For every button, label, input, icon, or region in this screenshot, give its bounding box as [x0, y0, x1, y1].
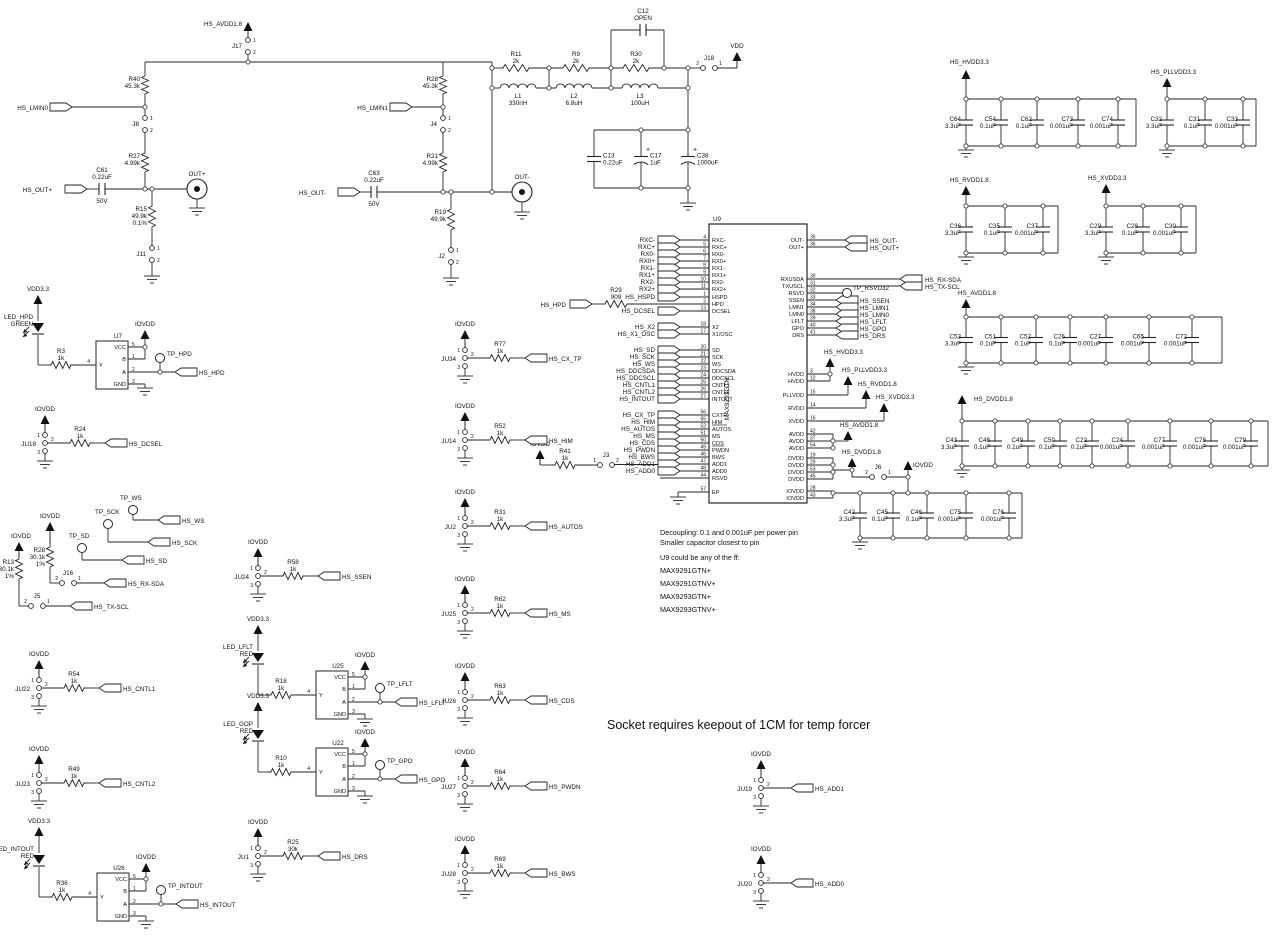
- pin-num-54: 54: [810, 443, 816, 449]
- pin-num: 1: [457, 776, 460, 782]
- resistor-body: [448, 206, 455, 233]
- ref-C37: C37: [1026, 223, 1038, 230]
- pin-num: 5: [132, 342, 135, 348]
- val-C45: 0.1uF: [872, 516, 888, 523]
- pin-num-28: 28: [810, 486, 816, 492]
- power-arrow-IOVDD: [461, 845, 470, 854]
- power-arrow-head: [254, 548, 263, 557]
- tp-label-TP_SCK: TP_SCK: [95, 509, 120, 516]
- net-flag-HS_CNTL2: [99, 779, 121, 787]
- pin-name-RXC-: RXC-: [712, 238, 726, 244]
- net-label-HS_HPD: HS_HPD: [540, 302, 566, 309]
- ref-C50: C50: [1043, 437, 1055, 444]
- power-net-IOVDD: IOVDD: [455, 403, 475, 410]
- pin-num: 2: [352, 774, 355, 780]
- val-R36: 1k: [59, 887, 67, 894]
- test-point-TP_WS: [129, 506, 138, 515]
- pin-name-RXUSDA: RXUSDA: [781, 277, 805, 283]
- resistor-body: [487, 610, 513, 617]
- val-R11: 2k: [513, 58, 521, 65]
- pin-name-DVDD: DVDD: [788, 470, 804, 476]
- val2-R13: 1%: [5, 573, 15, 580]
- led-triangle: [252, 653, 264, 662]
- pin-name-BWS: BWS: [712, 455, 725, 461]
- ref-C29: C29: [1089, 223, 1101, 230]
- power-net-HS_DVDD1.8: HS_DVDD1.8: [974, 396, 1013, 403]
- ref-C31: C31: [1188, 116, 1200, 123]
- val-C51: 0.1uF: [980, 341, 996, 348]
- pin-name-X2: X2: [712, 325, 719, 331]
- pin-name-RX0-: RX0-: [712, 252, 725, 258]
- net-flag-HS_CDS: [525, 696, 547, 704]
- power-net-IOVDD: IOVDD: [248, 539, 268, 546]
- power-net-IOVDD: IOVDD: [29, 746, 49, 753]
- pin-num: 3: [457, 447, 460, 453]
- junction-dot: [686, 66, 690, 70]
- pin-num: 3: [457, 707, 460, 713]
- net-label-HS_LMIN1: HS_LMIN1: [357, 105, 388, 112]
- power-arrow-IOVDD: [35, 660, 44, 669]
- junction-dot: [1241, 97, 1245, 101]
- ref-JU18: JU18: [21, 441, 36, 448]
- inductor-L2: [556, 84, 592, 88]
- pin-num-14: 14: [810, 403, 816, 409]
- junction-dot: [1104, 315, 1108, 319]
- net-label-HS_LFLT: HS_LFLT: [860, 319, 887, 326]
- pin-num: 4: [88, 891, 91, 897]
- net-flag-HS_LFLT: [395, 698, 417, 706]
- power-arrow-head: [844, 431, 853, 440]
- ref-R21: R21: [426, 153, 438, 160]
- ref-R27: R27: [128, 153, 140, 160]
- net-label-HS_OUT-: HS_OUT-: [870, 238, 897, 245]
- jumper-pin: [463, 603, 468, 608]
- ref-C13: C13: [603, 153, 615, 160]
- jumper-pin: [463, 879, 468, 884]
- ref-L2: L2: [570, 93, 578, 100]
- net-label-HS_ADD1: HS_ADD1: [626, 461, 656, 468]
- junction-dot: [143, 187, 147, 191]
- jumper-pin: [463, 348, 468, 353]
- junction-dot: [547, 86, 551, 90]
- ref-R28: R28: [33, 547, 45, 554]
- power-arrow-head: [46, 522, 55, 531]
- pin-num: 3: [753, 795, 756, 801]
- jumper-pin: [463, 532, 468, 537]
- net-label-RX1-: RX1-: [641, 265, 655, 272]
- test-point-TP_INTOUT: [157, 886, 166, 895]
- note-text: Socket requires keepout of 1CM for temp …: [607, 718, 870, 732]
- junction-dot: [964, 491, 968, 495]
- power-arrow-IOVDD: [361, 661, 370, 670]
- junction-dot: [831, 491, 835, 495]
- pin-num: 3: [250, 583, 253, 589]
- power-net-VDD3.3: VDD3.3: [28, 818, 51, 825]
- junction-dot: [960, 464, 964, 468]
- ref-J2: J2: [438, 253, 445, 260]
- jumper-pin: [463, 611, 468, 616]
- jumper-pin: [441, 128, 446, 133]
- resistor-body: [142, 150, 149, 175]
- junction-dot: [1165, 144, 1169, 148]
- extra-C61: 50V: [96, 198, 108, 205]
- pin-name-IOVDD: IOVDD: [786, 496, 804, 502]
- jumper-pin: [463, 516, 468, 521]
- jumper-pin: [256, 566, 261, 571]
- pin-num-7: 7: [703, 256, 706, 262]
- val-C37: 0.001uF: [1015, 230, 1038, 237]
- pin-num-30: 30: [810, 274, 816, 280]
- pin-num-19: 19: [810, 453, 816, 459]
- pin-num-16: 16: [810, 416, 816, 422]
- ref-J4: J4: [430, 121, 437, 128]
- net-flag-HS_TX-SCL: [900, 282, 922, 290]
- net-label-HS_DRS: HS_DRS: [860, 333, 886, 340]
- pin-name-INTOUT: INTOUT: [712, 397, 733, 403]
- ref-JU24: JU24: [234, 574, 249, 581]
- val-C48: 0.1uF: [974, 444, 990, 451]
- pin-num: 5: [352, 749, 355, 755]
- power-arrow-IOVDD: [254, 548, 263, 557]
- val2-R28: 1%: [36, 561, 46, 568]
- jumper-pin: [759, 881, 764, 886]
- val-C32: 3.3uF: [1146, 123, 1162, 130]
- junction-dot: [1165, 97, 1169, 101]
- val-C49: 0.1uF: [1007, 444, 1023, 451]
- power-net-IOVDD: IOVDD: [751, 751, 771, 758]
- power-arrow-head: [461, 330, 470, 339]
- power-arrow-IOVDD: [536, 450, 545, 459]
- junction-dot: [441, 190, 445, 194]
- ref-R49: R49: [68, 766, 80, 773]
- power-arrow-head: [1163, 78, 1172, 87]
- note-text: MAX9291GTNV+: [660, 579, 716, 588]
- power-arrow-VDD3.3: [34, 295, 43, 304]
- coax-center-OUT+: [194, 186, 200, 192]
- pin-num-21: 21: [700, 352, 706, 358]
- resistor-body: [149, 203, 156, 230]
- junction-dot: [1147, 315, 1151, 319]
- ref-C24: C24: [1111, 437, 1123, 444]
- net-label-HS_TX-SCL: HS_TX-SCL: [925, 284, 960, 291]
- jumper-pin: [150, 246, 155, 251]
- net-label-HS_HIM: HS_HIM: [549, 438, 573, 445]
- junction-dot: [1035, 97, 1039, 101]
- pin-name-DCSEL: DCSEL: [712, 309, 731, 315]
- jumper-pin: [598, 463, 603, 468]
- junction-dot: [831, 463, 835, 467]
- pin-num-17: 17: [700, 329, 706, 335]
- power-net-IOVDD: IOVDD: [355, 729, 375, 736]
- pin-num: 3: [31, 790, 34, 796]
- net-label-RXC+: RXC+: [638, 244, 655, 251]
- power-net-IOVDD: IOVDD: [455, 663, 475, 670]
- val-C65: 0.001uF: [1121, 341, 1144, 348]
- power-net-IOVDD: IOVDD: [455, 749, 475, 756]
- pin-num: 2: [264, 850, 267, 856]
- led-triangle: [33, 855, 45, 864]
- pin-num: 2: [471, 520, 474, 526]
- ref-R64: R64: [494, 769, 506, 776]
- pin-name-SD: SD: [712, 348, 720, 354]
- ref-C79: C79: [1234, 437, 1246, 444]
- ref-C65: C65: [1132, 334, 1144, 341]
- val-R3: 1k: [58, 355, 66, 362]
- ref-C42: C42: [843, 509, 855, 516]
- val-R54: 1k: [71, 678, 79, 685]
- val-C26: 0.1uF: [1049, 341, 1065, 348]
- ref-R62: R62: [494, 596, 506, 603]
- pin-num: 1: [456, 248, 459, 254]
- pin-gnd: GND: [334, 789, 346, 795]
- ref-R3: R3: [57, 348, 66, 355]
- test-point-TP_SCK: [104, 520, 113, 529]
- junction-dot: [686, 186, 690, 190]
- val-R29: 909: [611, 294, 622, 301]
- junction-dot: [999, 361, 1003, 365]
- pin-y: Y: [99, 363, 103, 369]
- junction-dot: [150, 187, 154, 191]
- coax-center-OUT-: [519, 189, 525, 195]
- net-label-HS_SD: HS_SD: [634, 347, 655, 354]
- pin-num-41: 41: [810, 330, 816, 336]
- pin-num-42: 42: [810, 429, 816, 435]
- power-arrow-HS_XVDD3.3: [880, 403, 889, 412]
- val-R18: 1k: [278, 685, 286, 692]
- net-label-HS_CDS: HS_CDS: [629, 440, 655, 447]
- resistor-body: [487, 437, 513, 444]
- jumper-pin: [610, 463, 615, 468]
- net-flag-HS_MS: [525, 609, 547, 617]
- power-arrow-IOVDD: [461, 412, 470, 421]
- junction-dot: [686, 86, 690, 90]
- net-label-HS_GPO: HS_GPO: [860, 326, 886, 333]
- power-arrow-head: [536, 450, 545, 459]
- net-flag-HS_INTOUT: [176, 900, 198, 908]
- junction-dot: [964, 97, 968, 101]
- val-C27: 0.001uF: [1078, 341, 1101, 348]
- jumper-pin: [463, 863, 468, 868]
- net-flag-HS_LMIN0: [50, 103, 72, 111]
- resistor-body: [280, 573, 306, 580]
- net-label-HS_WS: HS_WS: [633, 361, 655, 368]
- inductor-L3: [622, 84, 658, 88]
- pin-num-5: 5: [703, 242, 706, 248]
- net-label-HS_LMN1: HS_LMN1: [860, 305, 890, 312]
- note-text: MAX9293GTN+: [660, 592, 711, 601]
- schematic-canvas: HS_AVDD1.8VDDVDD3.3IOVDDIOVDDIOVDDIOVDDI…: [0, 0, 1272, 942]
- pin-num: 2: [45, 777, 48, 783]
- jumper-pin: [759, 778, 764, 783]
- ref-JU20: JU20: [737, 881, 752, 888]
- junction-dot: [831, 470, 835, 474]
- pin-num: 1: [457, 348, 460, 354]
- junction-dot: [964, 536, 968, 540]
- led-color-LED_INTOUT: RED: [21, 853, 35, 860]
- ref-C78: C78: [1194, 437, 1206, 444]
- ref-R19: R19: [434, 209, 446, 216]
- junction-dot: [850, 468, 854, 472]
- val-R27: 4.99k: [125, 160, 141, 167]
- jumper-pin: [463, 446, 468, 451]
- pin-num-6: 6: [703, 249, 706, 255]
- pin-num-52: 52: [700, 424, 706, 430]
- junction-dot: [1007, 536, 1011, 540]
- val-R21: 4.99k: [423, 160, 439, 167]
- jumper-pin: [150, 258, 155, 263]
- jumper-pin: [463, 698, 468, 703]
- pin-num: 2: [471, 434, 474, 440]
- pin-num-43: 43: [810, 493, 816, 499]
- net-label-RXC-: RXC-: [640, 237, 655, 244]
- ref-JU2: JU2: [445, 524, 457, 531]
- power-arrow-HS_PLLVDD3.3: [1163, 78, 1172, 87]
- val-C12: OPEN: [634, 15, 652, 22]
- net-flag-HS_AUTOS: [525, 522, 547, 530]
- ref-C27: C27: [1089, 334, 1101, 341]
- net-label-HS_CX_TP: HS_CX_TP: [622, 412, 655, 419]
- ref-R52: R52: [494, 423, 506, 430]
- pin-num: 3: [352, 709, 355, 715]
- power-arrow-head: [35, 755, 44, 764]
- junction-dot: [639, 186, 643, 190]
- junction-dot: [993, 464, 997, 468]
- val-C50: 0.1uF: [1039, 444, 1055, 451]
- ref-C53: C53: [949, 334, 961, 341]
- junction-dot: [1179, 251, 1183, 255]
- junction-dot: [639, 128, 643, 132]
- ref-J5: J5: [34, 593, 41, 600]
- net-label-HS_CX_TP: HS_CX_TP: [549, 356, 582, 363]
- power-arrow-head: [733, 52, 742, 61]
- jumper-pin: [463, 792, 468, 797]
- pin-name-ADD0: ADD0: [712, 469, 727, 475]
- junction-dot: [1190, 361, 1194, 365]
- pin-num-46: 46: [700, 452, 706, 458]
- resistor-body: [487, 783, 513, 790]
- pin-gnd: GND: [115, 914, 127, 920]
- pin-num-53: 53: [810, 467, 816, 473]
- ref-C35: C35: [988, 223, 1000, 230]
- ref-R41: R41: [559, 448, 571, 455]
- jumper-pin: [882, 475, 887, 480]
- resistor-body: [487, 355, 513, 362]
- power-arrow-head: [461, 758, 470, 767]
- val-C22: 0.1uF: [1071, 444, 1087, 451]
- power-arrow-head: [962, 299, 971, 308]
- ref-C75: C75: [949, 509, 961, 516]
- pin-name-LMN1: LMN1: [789, 305, 804, 311]
- net-flag-HS_HIM: [525, 436, 547, 444]
- net-label-RX2+: RX2+: [639, 286, 655, 293]
- power-net-HS_XVDD3.3: HS_XVDD3.3: [876, 394, 915, 401]
- val-R62: 1k: [497, 603, 505, 610]
- jumper-pin: [256, 846, 261, 851]
- net-label-HS_HPD: HS_HPD: [199, 370, 225, 377]
- net-flag-HS_SSEN: [318, 572, 340, 580]
- val-R41: 1k: [562, 455, 570, 462]
- note-text: U9 could be any of the ff:: [660, 553, 740, 562]
- jumper-pin: [37, 781, 42, 786]
- junction-dot: [1104, 251, 1108, 255]
- ref-C45: C45: [876, 509, 888, 516]
- ref-C12: C12: [637, 8, 649, 15]
- pin-num: 2: [352, 697, 355, 703]
- pin-name-AVDD: AVDD: [789, 446, 804, 452]
- jumper-pin: [463, 438, 468, 443]
- val-L3: 100uH: [631, 100, 650, 107]
- power-net-IOVDD: IOVDD: [136, 854, 156, 861]
- junction-dot: [1209, 464, 1213, 468]
- ref-C28: C28: [1126, 223, 1138, 230]
- ref-R31: R31: [494, 509, 506, 516]
- jumper-pin: [143, 116, 148, 121]
- pin-num-18: 18: [700, 322, 706, 328]
- pin-num-1: 1: [703, 292, 706, 298]
- pin-num: 3: [133, 911, 136, 917]
- pin-num-23: 23: [700, 366, 706, 372]
- jumper-pin: [256, 854, 261, 859]
- power-arrow-VDD3.3: [35, 827, 44, 836]
- junction-dot: [831, 446, 835, 450]
- val-C31: 0.1uF: [1184, 123, 1200, 130]
- net-flag-HS_ADD0: [791, 879, 813, 887]
- tp-label-TP_WS: TP_WS: [120, 495, 142, 502]
- pin-num-51: 51: [700, 431, 706, 437]
- val-C36: 3.3uF: [945, 230, 961, 237]
- pin-num-3: 3: [810, 369, 813, 375]
- jumper-pin: [37, 678, 42, 683]
- ref-C22: C22: [1075, 437, 1087, 444]
- ref-JU26: JU26: [441, 698, 456, 705]
- net-label-HS_RX-SDA: HS_RX-SDA: [925, 277, 962, 284]
- pin-num: 2: [767, 782, 770, 788]
- net-flag-HS_SCK: [148, 538, 170, 546]
- power-arrow-HS_AVDD1.8: [962, 299, 971, 308]
- power-arrow-IOVDD: [461, 330, 470, 339]
- junction-dot: [363, 675, 367, 679]
- junction-dot: [1104, 361, 1108, 365]
- junction-dot: [906, 475, 910, 479]
- net-label-HS_WS: HS_WS: [182, 518, 204, 525]
- pin-name-OUT-: OUT-: [791, 238, 804, 244]
- pin-num: 1: [753, 873, 756, 879]
- pin-a: A: [342, 700, 346, 706]
- pin-name-CNTL2: CNTL2: [712, 390, 730, 396]
- tp-label-TP_GPO: TP_GPO: [387, 758, 413, 765]
- note-text: Decoupling: 0.1 and 0.001uF per power pi…: [660, 528, 798, 537]
- power-net-HS_AVDD1.8: HS_AVDD1.8: [958, 290, 997, 297]
- jumper-pin: [441, 116, 446, 121]
- pin-name-DDCSDA: DDCSDA: [712, 369, 736, 375]
- power-arrow-head: [254, 625, 263, 634]
- val-C46: 0.1uF: [906, 516, 922, 523]
- junction-dot: [925, 536, 929, 540]
- pin-name-AVDD: AVDD: [789, 432, 804, 438]
- junction-dot: [1241, 144, 1245, 148]
- ref-J18: J18: [704, 55, 715, 62]
- power-arrow-head: [461, 412, 470, 421]
- net-label-HS_MS: HS_MS: [633, 433, 655, 440]
- net-label-HS_ADD0: HS_ADD0: [815, 881, 845, 888]
- junction-dot: [1035, 144, 1039, 148]
- val-C77: 0.001uF: [1142, 444, 1165, 451]
- net-label-HS_HIM: HS_HIM: [631, 419, 655, 426]
- junction-dot: [490, 66, 494, 70]
- ref-C51: C51: [984, 334, 996, 341]
- junction-dot: [1249, 419, 1253, 423]
- val-R52: 1k: [497, 430, 505, 437]
